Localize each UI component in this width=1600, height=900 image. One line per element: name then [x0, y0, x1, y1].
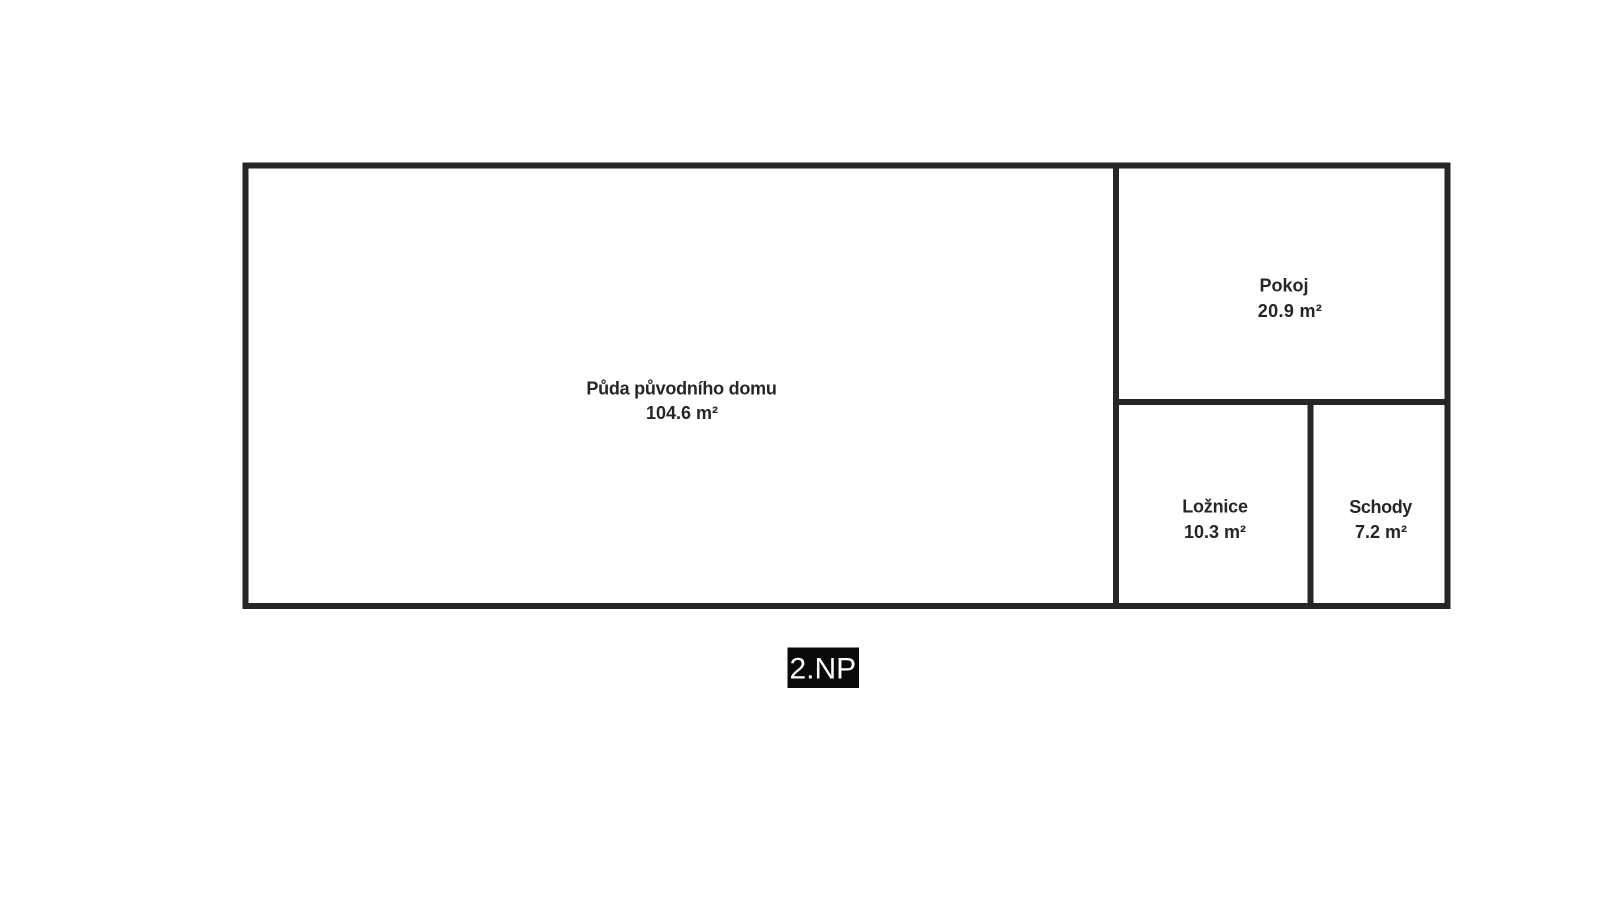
svg-text:Schody: Schody [1349, 497, 1412, 517]
svg-text:Ložnice: Ložnice [1182, 497, 1248, 517]
svg-text:7.2 m²: 7.2 m² [1355, 522, 1407, 542]
svg-text:Půda původního domu: Půda původního domu [586, 379, 776, 399]
svg-text:Pokoj: Pokoj [1259, 276, 1308, 296]
svg-text:104.6 m²: 104.6 m² [646, 403, 718, 423]
svg-text:20.9 m²: 20.9 m² [1258, 301, 1322, 321]
svg-text:2.NP: 2.NP [790, 652, 857, 685]
svg-text:10.3 m²: 10.3 m² [1184, 522, 1246, 542]
